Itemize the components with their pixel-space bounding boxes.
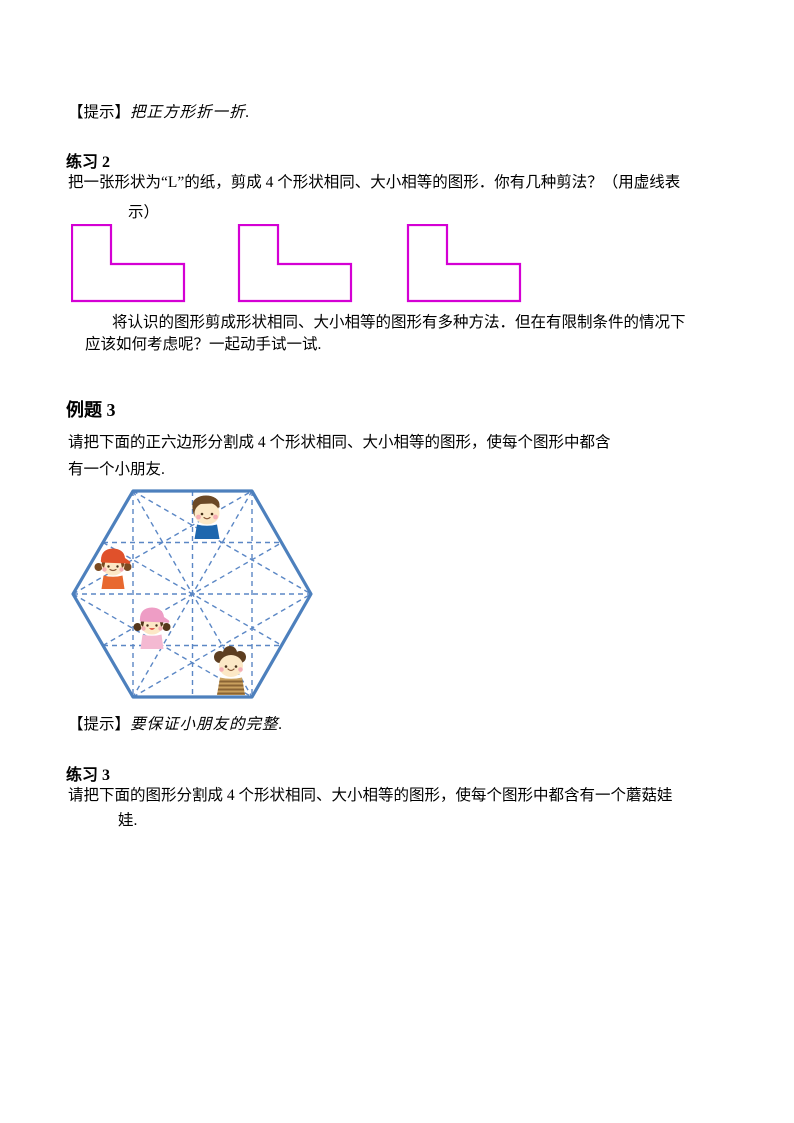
hint1: 【提示】把正方形折一折.	[68, 103, 250, 122]
exercise3-line2: 娃.	[118, 811, 137, 830]
middle-paragraph-line1: 将认识的图形剪成形状相同、大小相等的图形有多种方法．但在有限制条件的情况下	[112, 313, 686, 332]
l-shape-2	[239, 225, 351, 301]
hint1-label: 【提示】	[68, 104, 130, 121]
exercise2-line1: 把一张形状为“L”的纸，剪成 4 个形状相同、大小相等的图形．你有几种剪法？（用…	[68, 173, 680, 192]
example3-line1: 请把下面的正六边形分割成 4 个形状相同、大小相等的图形，使每个图形中都含	[68, 433, 611, 452]
worksheet-page: 【提示】把正方形折一折. 练习 2 把一张形状为“L”的纸，剪成 4 个形状相同…	[0, 0, 794, 1123]
hint2-text: 要保证小朋友的完整.	[130, 716, 283, 733]
hint2-label: 【提示】	[68, 716, 130, 733]
middle-paragraph-line2: 应该如何考虑呢？一起动手试一试.	[85, 335, 321, 354]
exercise3-line1: 请把下面的图形分割成 4 个形状相同、大小相等的图形，使每个图形中都含有一个蘑菇…	[68, 786, 673, 805]
exercise2-line2: 示）	[128, 203, 159, 222]
example3-line2: 有一个小朋友.	[68, 460, 165, 479]
l-shapes-figure	[71, 224, 523, 304]
l-shape-1	[72, 225, 184, 301]
hexagon-figure	[71, 489, 315, 701]
exercise3-heading: 练习 3	[66, 761, 110, 785]
hint1-text: 把正方形折一折.	[130, 104, 250, 121]
example3-heading: 例题 3	[66, 396, 116, 422]
exercise2-heading: 练习 2	[66, 148, 110, 172]
hint2: 【提示】要保证小朋友的完整.	[68, 715, 283, 734]
boy-blue-shirt-figure	[192, 496, 220, 540]
l-shape-3	[408, 225, 520, 301]
